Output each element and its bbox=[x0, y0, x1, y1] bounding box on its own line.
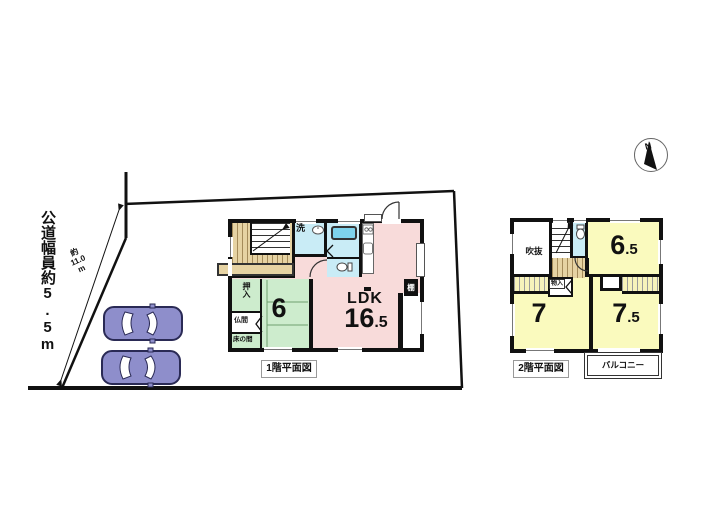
tatami-size-label: 6 bbox=[262, 295, 296, 322]
road-width-label: 公道幅員約5.5m bbox=[40, 210, 55, 353]
ldk-size-label: 16.5 bbox=[330, 305, 402, 332]
storage-label: 物入 bbox=[549, 279, 565, 289]
floor2-caption: 2階平面図 bbox=[513, 360, 569, 378]
window bbox=[264, 347, 292, 352]
window-box bbox=[364, 214, 382, 222]
floor1-plan bbox=[228, 219, 424, 352]
floor1-stairs bbox=[250, 223, 290, 255]
floor1-side-strip bbox=[403, 293, 420, 348]
floor2-closet-left bbox=[514, 277, 548, 294]
butsuma-label: 仏間 bbox=[234, 317, 248, 324]
floor1-caption: 1階平面図 bbox=[261, 360, 317, 378]
ldk-wall-stub bbox=[364, 287, 371, 291]
window bbox=[510, 304, 515, 336]
frontage-dimension-arrow bbox=[61, 210, 119, 380]
room75-size-label: 7.5 bbox=[600, 300, 652, 327]
balcony: バルコニー bbox=[584, 352, 662, 379]
window bbox=[338, 347, 362, 352]
floor2-stairs-landing bbox=[552, 258, 585, 278]
window bbox=[510, 234, 515, 254]
floor1-entrance-opening bbox=[228, 259, 232, 276]
room7-size-label: 7 bbox=[524, 300, 554, 327]
window bbox=[658, 240, 663, 264]
compass-n-label: N bbox=[644, 141, 652, 151]
floor2-wall-notch bbox=[600, 277, 622, 291]
room65-size-label: 6.5 bbox=[596, 232, 652, 259]
tokonoma-label: 床の間 bbox=[233, 337, 253, 344]
floor1-toilet-room bbox=[327, 257, 362, 277]
window bbox=[553, 218, 567, 223]
floor2-closet-right bbox=[622, 277, 659, 294]
window bbox=[228, 237, 233, 257]
bathtub bbox=[331, 226, 357, 240]
window-box bbox=[416, 243, 425, 277]
wall bbox=[589, 277, 593, 349]
window bbox=[574, 218, 586, 223]
floorplan-page: バルコニー 1階平面図 2階平面図 公道幅員約5.5m 約 11.0 m 洗 押… bbox=[0, 0, 705, 525]
window bbox=[610, 218, 640, 223]
laundry-label: 洗 bbox=[296, 224, 305, 233]
kitchen-counter bbox=[362, 223, 374, 274]
shelf-label: 棚 bbox=[404, 279, 418, 296]
window bbox=[338, 219, 360, 224]
window bbox=[658, 304, 663, 334]
window bbox=[526, 348, 554, 353]
floor2-toilet-room bbox=[573, 222, 588, 258]
car-icon bbox=[102, 348, 180, 387]
floor2-stairs bbox=[552, 222, 573, 258]
window bbox=[419, 302, 424, 334]
balcony-label: バルコニー bbox=[602, 361, 644, 370]
oshiire-label: 押入 bbox=[242, 282, 250, 298]
car-icon bbox=[104, 304, 182, 343]
void-label: 吹抜 bbox=[516, 247, 552, 256]
frontage-dimension-label: 約 11.0 m bbox=[56, 241, 100, 280]
door-opening bbox=[382, 219, 401, 224]
